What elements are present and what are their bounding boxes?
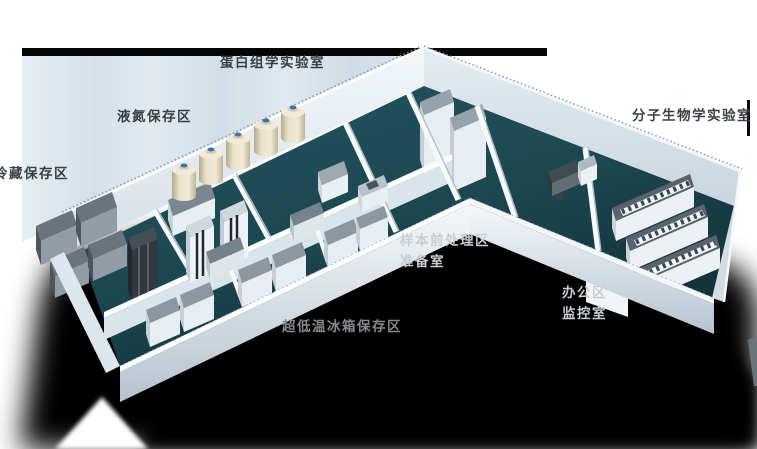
label-ult-freezer-area: 超低温冰箱保存区	[282, 321, 402, 335]
tank-cap	[181, 164, 188, 168]
tank-cap	[290, 106, 297, 110]
tank-cap	[235, 133, 242, 137]
tank-cap	[263, 119, 270, 123]
tank-cap	[208, 148, 215, 152]
label-proteomics-lab: 蛋白组学实验室	[220, 57, 325, 71]
floorplan-3d-rendering	[0, 0, 757, 449]
label-cold-storage-area: 冷藏保存区	[0, 168, 69, 182]
label-monitoring-room: 监控室	[562, 308, 607, 322]
label-molecular-biology-lab: 分子生物学实验室	[632, 110, 752, 124]
label-sample-pretreatment-area: 样本前处理区	[400, 235, 490, 249]
lab-floorplan-screenshot: 蛋白组学实验室 液氮保存区 冷藏保存区 分子生物学实验室 样本前处理区 准备室 …	[0, 0, 757, 449]
label-office-area: 办公区	[562, 287, 607, 301]
chair	[556, 194, 565, 200]
label-preparation-room: 准备室	[400, 256, 445, 270]
label-liquid-nitrogen-area: 液氮保存区	[117, 111, 192, 125]
